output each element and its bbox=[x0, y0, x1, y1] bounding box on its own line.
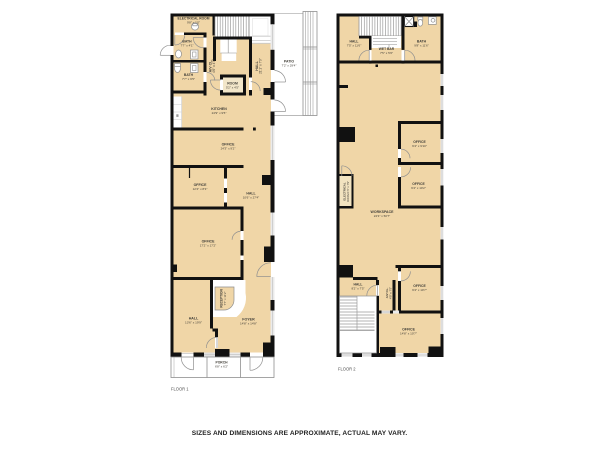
svg-text:24'3" x 9'2": 24'3" x 9'2" bbox=[221, 147, 236, 151]
svg-text:4'6" x 4'5": 4'6" x 4'5" bbox=[212, 59, 216, 73]
svg-text:14'8" x 14'8": 14'8" x 14'8" bbox=[240, 322, 257, 326]
svg-text:24'3" x 50'7": 24'3" x 50'7" bbox=[374, 214, 390, 218]
svg-text:8'2" x 7'5": 8'2" x 7'5" bbox=[351, 287, 364, 291]
svg-text:7'5" x 11'6": 7'5" x 11'6" bbox=[347, 44, 362, 48]
svg-text:21'1" x 7'9": 21'1" x 7'9" bbox=[259, 58, 263, 74]
svg-text:9'4" x 9'10": 9'4" x 9'10" bbox=[412, 144, 427, 148]
svg-text:7'5" x 5'6": 7'5" x 5'6" bbox=[380, 51, 393, 55]
svg-text:7'7" x 11'2": 7'7" x 11'2" bbox=[223, 291, 227, 305]
svg-text:7'2" x 29'4": 7'2" x 29'4" bbox=[282, 64, 297, 68]
svg-text:ELECTRICAL: ELECTRICAL bbox=[343, 182, 347, 201]
svg-text:14'8" x 10'7": 14'8" x 10'7" bbox=[400, 332, 417, 336]
svg-text:7'7" x 9'5": 7'7" x 9'5" bbox=[182, 77, 195, 81]
svg-text:9'4" x 10'7": 9'4" x 10'7" bbox=[412, 288, 427, 292]
svg-text:17'2" x 17'2": 17'2" x 17'2" bbox=[200, 244, 216, 248]
svg-text:10'6" x 27'4": 10'6" x 27'4" bbox=[243, 196, 259, 200]
svg-text:SIZES AND DIMENSIONS ARE APPRO: SIZES AND DIMENSIONS ARE APPROXIMATE, AC… bbox=[192, 430, 408, 437]
svg-text:7'7" x 4'1": 7'7" x 4'1" bbox=[180, 44, 193, 48]
svg-text:24'9" x 9'5": 24'9" x 9'5" bbox=[212, 111, 227, 115]
svg-text:9'4" x 10'2": 9'4" x 10'2" bbox=[411, 186, 426, 190]
svg-text:ROOM 1'5" x 7'9": ROOM 1'5" x 7'9" bbox=[346, 181, 350, 202]
svg-text:12'4" x 8'3": 12'4" x 8'3" bbox=[193, 187, 208, 191]
svg-text:FLOOR 1: FLOOR 1 bbox=[171, 387, 189, 392]
svg-text:13'6" x 19'9": 13'6" x 19'9" bbox=[185, 321, 202, 325]
svg-text:FLOOR 2: FLOOR 2 bbox=[338, 367, 356, 372]
svg-text:9'8" x 11'6": 9'8" x 11'6" bbox=[414, 44, 429, 48]
svg-text:6'8" x 6'2": 6'8" x 6'2" bbox=[215, 365, 228, 369]
svg-text:4'9" x 7'5": 4'9" x 7'5" bbox=[389, 287, 393, 299]
svg-text:5'2" x 4'5": 5'2" x 4'5" bbox=[226, 86, 239, 90]
